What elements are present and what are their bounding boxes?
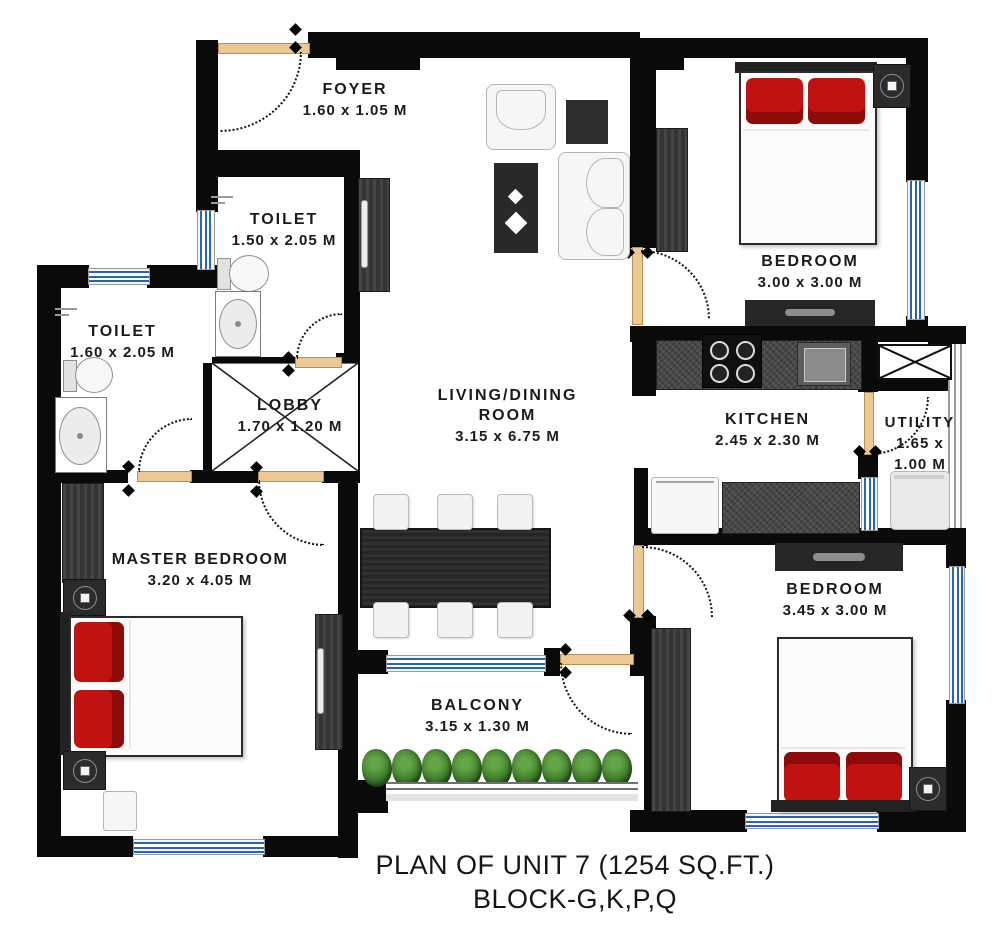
burner: [710, 364, 729, 383]
window: [861, 477, 878, 531]
nightstand-lamp: [63, 751, 106, 790]
room-name: BEDROOM: [730, 252, 890, 272]
rug: [494, 163, 538, 253]
dining-chair: [437, 494, 473, 530]
wall-segment: [630, 52, 656, 248]
room-dims: 1.60 x 2.05 M: [50, 344, 195, 363]
wall-segment: [634, 468, 648, 546]
toilet-door-swing-arc: [138, 418, 192, 472]
room-dims: 1.65 x: [878, 435, 962, 454]
rug-diamond: [508, 189, 524, 205]
room-name: FOYER: [270, 80, 440, 100]
dresser: [775, 543, 903, 571]
wall-segment: [358, 650, 388, 674]
pillow: [846, 752, 902, 802]
plan-title-line1: PLAN OF UNIT 7 (1254 SQ.FT.): [205, 848, 945, 882]
room-name: UTILITY: [878, 414, 962, 433]
balcony-railing-base: [386, 794, 638, 801]
room-label-foyer: FOYER 1.60 x 1.05 M: [270, 80, 440, 121]
washbasin: [219, 299, 257, 349]
dining-table: [360, 528, 551, 608]
nightstand-lamp: [909, 767, 947, 811]
bedroom-door-swing-arc: [641, 250, 710, 319]
window: [88, 268, 150, 285]
sofa-cushion: [586, 208, 624, 256]
balcony-door-swing-arc: [560, 663, 632, 735]
room-dims: 3.45 x 3.00 M: [755, 602, 915, 621]
shower-mixer-icon: [55, 308, 77, 310]
toilet-wc-bowl: [229, 255, 269, 292]
plan-title-line2: BLOCK-G,K,P,Q: [205, 882, 945, 916]
fridge-handle: [656, 481, 714, 483]
stool: [103, 791, 137, 831]
window: [949, 566, 965, 704]
nightstand-lamp: [873, 64, 911, 108]
refrigerator: [651, 477, 719, 534]
room-name: LOBBY: [215, 396, 365, 416]
dining-chair: [497, 602, 533, 638]
kitchen-counter: [722, 482, 860, 534]
room-dims: 3.20 x 4.05 M: [105, 572, 295, 591]
shower-mixer-icon: [55, 314, 69, 316]
wardrobe: [62, 483, 104, 583]
room-dims: 1.60 x 1.05 M: [270, 102, 440, 121]
room-name: BEDROOM: [755, 580, 915, 600]
blanket-line: [781, 747, 905, 749]
room-label-living-dining: LIVING/DINING ROOM 3.15 x 6.75 M: [420, 386, 595, 447]
side-table: [566, 100, 608, 144]
room-label-bedroom-top-right: BEDROOM 3.00 x 3.00 M: [730, 252, 890, 293]
bedroom-door-swing-arc: [642, 546, 713, 617]
room-dims: 1.50 x 2.05 M: [214, 232, 354, 251]
tv-icon: [317, 648, 324, 714]
wall-segment: [212, 150, 358, 177]
room-label-master-bedroom: MASTER BEDROOM 3.20 x 4.05 M: [105, 550, 295, 591]
room-label-bedroom-bottom-right: BEDROOM 3.45 x 3.00 M: [755, 580, 915, 621]
shaft-box: [878, 344, 952, 380]
room-label-lobby: LOBBY 1.70 x 1.20 M: [215, 396, 365, 437]
floor-plan: FOYER 1.60 x 1.05 M TOILET 1.50 x 2.05 M…: [0, 0, 1000, 934]
wall-segment: [946, 700, 966, 816]
room-dims: 3.00 x 3.00 M: [730, 274, 890, 293]
dining-chair: [373, 602, 409, 638]
room-dims: 3.15 x 6.75 M: [420, 428, 595, 447]
wall-segment: [190, 470, 258, 483]
room-name: ROOM: [420, 406, 595, 426]
room-label-utility: UTILITY 1.65 x 1.00 M: [878, 414, 962, 474]
wall-segment: [946, 528, 966, 568]
dresser-handle: [785, 309, 835, 316]
master-bedroom-door-swing-arc: [258, 480, 324, 546]
wall-segment: [37, 836, 133, 857]
sink-basin: [804, 348, 846, 382]
tv-icon: [361, 200, 368, 268]
shaft-cross-icon: [880, 346, 950, 378]
room-name: TOILET: [50, 322, 195, 342]
room-name: TOILET: [214, 210, 354, 230]
dining-chair: [373, 494, 409, 530]
stove: [702, 334, 762, 388]
wall-segment: [196, 40, 218, 212]
dresser: [745, 300, 875, 326]
window: [197, 210, 215, 270]
pillow: [746, 78, 803, 124]
window: [745, 813, 879, 829]
wall-segment: [336, 58, 420, 70]
wardrobe: [656, 128, 688, 252]
room-name: KITCHEN: [690, 410, 845, 430]
window: [386, 655, 546, 672]
dining-chair: [497, 494, 533, 530]
pillow: [74, 690, 124, 748]
sofa-cushion: [586, 158, 624, 208]
plan-title: PLAN OF UNIT 7 (1254 SQ.FT.) BLOCK-G,K,P…: [205, 848, 945, 916]
room-name: MASTER BEDROOM: [105, 550, 295, 570]
washer-panel: [894, 475, 944, 479]
wall-segment: [654, 58, 684, 70]
bed-footboard: [771, 800, 915, 812]
washing-machine: [890, 471, 950, 530]
toilet-door-swing-arc: [296, 313, 342, 359]
room-dims: 3.15 x 1.30 M: [395, 718, 560, 737]
door-stop: [289, 23, 302, 36]
room-name: LIVING/DINING: [420, 386, 595, 406]
rug-diamond: [505, 212, 528, 235]
nightstand-lamp: [63, 579, 106, 616]
wall-segment: [308, 32, 640, 58]
dresser-handle: [813, 553, 865, 561]
room-label-toilet-left: TOILET 1.60 x 2.05 M: [50, 322, 195, 363]
room-dims: 1.70 x 1.20 M: [215, 418, 365, 437]
room-name: BALCONY: [395, 696, 560, 716]
burner: [710, 341, 729, 360]
pillow: [808, 78, 865, 124]
blanket-line: [743, 129, 869, 131]
room-label-kitchen: KITCHEN 2.45 x 2.30 M: [690, 410, 845, 451]
pillow: [74, 622, 124, 682]
armchair-cushion: [496, 90, 546, 130]
room-label-balcony: BALCONY 3.15 x 1.30 M: [395, 696, 560, 737]
wall-segment: [544, 648, 560, 676]
toilet-door-leaf: [137, 471, 192, 482]
blanket-line: [129, 620, 131, 749]
burner: [736, 364, 755, 383]
shower-mixer-icon: [211, 196, 233, 198]
room-dims: 1.00 M: [878, 456, 962, 475]
wall-segment: [630, 810, 747, 832]
burner: [736, 341, 755, 360]
room-dims: 2.45 x 2.30 M: [690, 432, 845, 451]
shower-mixer-icon: [211, 202, 225, 204]
wall-segment: [928, 326, 966, 344]
room-label-toilet-top: TOILET 1.50 x 2.05 M: [214, 210, 354, 251]
wall-segment: [636, 38, 928, 58]
door-stop: [122, 484, 135, 497]
dining-chair: [437, 602, 473, 638]
wardrobe: [651, 628, 691, 812]
balcony-railing: [386, 782, 638, 794]
pillow: [784, 752, 840, 802]
kitchen-sink: [797, 342, 851, 386]
window: [907, 180, 925, 320]
washbasin: [59, 407, 101, 465]
